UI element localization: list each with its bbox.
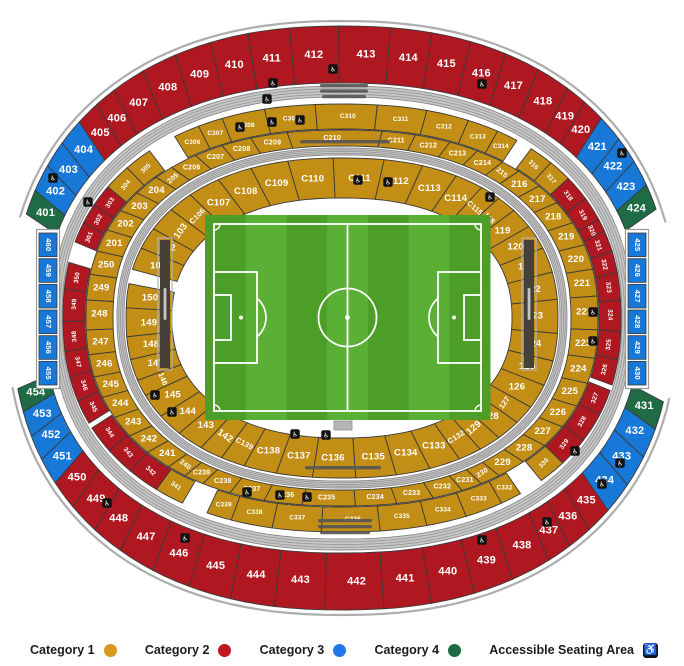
section-label-218: 218 — [545, 212, 561, 223]
section-label-216: 216 — [511, 179, 527, 190]
section-label-458: 458 — [44, 290, 53, 303]
svg-text:♿: ♿ — [244, 488, 250, 496]
svg-text:♿: ♿ — [304, 493, 310, 501]
section-label-228: 228 — [516, 443, 532, 454]
section-label-C311: C311 — [393, 116, 409, 123]
section-label-401: 401 — [36, 207, 55, 219]
legend-label: Category 2 — [145, 643, 210, 657]
section-label-406: 406 — [107, 113, 126, 125]
stadium-map: 4074084094104114124134144154164174184194… — [0, 0, 684, 634]
concourse-text-blob — [322, 95, 366, 98]
svg-text:♿: ♿ — [182, 534, 188, 542]
section-label-429: 429 — [633, 341, 642, 354]
section-label-204: 204 — [148, 185, 165, 196]
svg-text:♿: ♿ — [152, 391, 158, 399]
section-label-445: 445 — [206, 560, 225, 572]
wheelchair-icon: ♿ — [477, 535, 486, 544]
section-label-217: 217 — [529, 194, 545, 205]
section-label-428: 428 — [633, 315, 642, 328]
section-label-203: 203 — [131, 201, 147, 212]
wheelchair-icon: ♿ — [383, 177, 392, 186]
section-label-C332: C332 — [496, 485, 512, 492]
section-label-431: 431 — [635, 400, 654, 412]
section-label-249: 249 — [93, 283, 109, 294]
wheelchair-icon: ♿ — [267, 117, 276, 126]
wheelchair-icon: ♿ — [615, 458, 624, 467]
center-spot — [345, 315, 350, 320]
svg-text:♿: ♿ — [292, 430, 298, 438]
legend: Category 1 Category 2 Category 3 Categor… — [0, 637, 684, 663]
wheelchair-icon: ♿ — [262, 94, 271, 103]
section-label-424: 424 — [627, 203, 647, 215]
section-label-442: 442 — [347, 575, 366, 587]
soccer-field — [205, 215, 491, 420]
section-label-402: 402 — [46, 185, 65, 197]
field-stripe — [368, 215, 409, 420]
concourse-text-blob — [320, 84, 368, 87]
wheelchair-icon: ♿ — [477, 79, 486, 88]
section-label-432: 432 — [625, 425, 644, 437]
section-label-423: 423 — [617, 181, 636, 193]
wheelchair-icon: ♿ — [542, 517, 551, 526]
section-label-247: 247 — [92, 336, 108, 347]
legend-item-category-3: Category 3 — [260, 643, 347, 657]
section-label-145: 145 — [164, 390, 181, 401]
svg-text:♿: ♿ — [599, 480, 605, 488]
wheelchair-icon: ♿ — [180, 533, 189, 542]
section-label-246: 246 — [96, 359, 112, 370]
section-label-C334: C334 — [435, 506, 451, 513]
svg-text:♿: ♿ — [237, 123, 243, 131]
section-label-C137: C137 — [287, 450, 311, 461]
section-label-417: 417 — [504, 80, 523, 92]
svg-text:♿: ♿ — [479, 536, 485, 544]
concourse-text-blob — [318, 525, 372, 528]
section-label-420: 420 — [571, 124, 590, 136]
section-label-C310: C310 — [340, 113, 356, 120]
section-label-227: 227 — [534, 426, 550, 437]
section-label-435: 435 — [577, 495, 596, 507]
legend-item-category-2: Category 2 — [145, 643, 232, 657]
section-label-404: 404 — [74, 144, 94, 156]
wheelchair-icon: ♿ — [290, 429, 299, 438]
section-label-408: 408 — [158, 81, 177, 93]
section-label-126: 126 — [509, 381, 525, 392]
section-label-245: 245 — [103, 379, 120, 390]
section-label-201: 201 — [106, 238, 123, 249]
section-label-418: 418 — [533, 96, 552, 108]
section-label-453: 453 — [33, 408, 52, 420]
svg-text:♿: ♿ — [590, 308, 596, 316]
section-label-409: 409 — [190, 69, 209, 81]
section-label-C209: C209 — [264, 140, 282, 147]
section-label-C114: C114 — [444, 193, 468, 204]
section-label-444: 444 — [247, 569, 267, 581]
svg-text:♿: ♿ — [330, 65, 336, 73]
section-label-452: 452 — [42, 429, 61, 441]
wheelchair-icon: ♿ — [48, 173, 57, 182]
section-label-226: 226 — [550, 407, 566, 418]
penalty-spot — [452, 316, 456, 320]
section-label-C212: C212 — [420, 143, 438, 150]
svg-text:♿: ♿ — [264, 95, 270, 103]
section-label-C232: C232 — [434, 484, 452, 491]
section-label-241: 241 — [159, 448, 176, 459]
section-label-143: 143 — [198, 420, 214, 431]
section-label-460: 460 — [44, 238, 53, 251]
section-label-C307: C307 — [207, 130, 223, 137]
section-label-221: 221 — [574, 278, 591, 289]
penalty-spot — [239, 316, 243, 320]
section-label-C333: C333 — [471, 496, 487, 503]
section-label-242: 242 — [141, 433, 157, 444]
category-3-color-dot — [333, 644, 346, 657]
right-side-strip: 425426427428429430 — [626, 230, 649, 389]
section-label-325: 325 — [605, 338, 613, 350]
section-label-448: 448 — [109, 513, 128, 525]
concourse-text-blob — [305, 466, 381, 469]
wheelchair-icon: ♿ — [167, 407, 176, 416]
section-label-250: 250 — [98, 259, 114, 270]
category-4-color-dot — [448, 644, 461, 657]
section-label-C239: C239 — [193, 470, 211, 477]
section-label-244: 244 — [112, 398, 129, 409]
svg-text:♿: ♿ — [385, 178, 391, 186]
section-label-436: 436 — [559, 511, 578, 523]
section-label-407: 407 — [129, 97, 148, 109]
section-label-C134: C134 — [394, 447, 418, 458]
wheelchair-icon: ♿ — [83, 197, 92, 206]
field-suites-bar — [522, 238, 536, 370]
section-label-456: 456 — [44, 341, 53, 354]
category-1-color-dot — [104, 644, 117, 657]
section-label-C133: C133 — [422, 440, 446, 451]
section-label-441: 441 — [396, 572, 415, 584]
legend-label: Category 3 — [260, 643, 325, 657]
section-label-C108: C108 — [234, 186, 258, 197]
section-label-419: 419 — [555, 111, 574, 123]
section-label-411: 411 — [263, 52, 281, 64]
section-label-421: 421 — [588, 141, 607, 153]
section-label-248: 248 — [91, 309, 107, 320]
section-label-224: 224 — [570, 363, 587, 374]
svg-text:♿: ♿ — [270, 79, 276, 87]
section-label-450: 450 — [68, 472, 87, 484]
section-label-148: 148 — [143, 339, 159, 350]
svg-text:♿: ♿ — [590, 337, 596, 345]
section-label-412: 412 — [304, 49, 323, 61]
section-label-C231: C231 — [456, 477, 474, 484]
section-label-C214: C214 — [474, 160, 492, 167]
wheelchair-icon: ♿ — [588, 336, 597, 345]
section-label-416: 416 — [472, 68, 491, 80]
section-label-405: 405 — [91, 127, 110, 139]
section-label-C207: C207 — [207, 154, 225, 161]
wheelchair-icon: ♿ — [485, 192, 494, 201]
section-label-202: 202 — [117, 219, 133, 230]
section-label-C109: C109 — [265, 178, 289, 189]
concourse-text-blob — [300, 140, 390, 143]
field-suites-bar — [158, 238, 172, 370]
section-label-C337: C337 — [289, 515, 305, 522]
wheelchair-icon: ♿ — [242, 487, 251, 496]
svg-text:♿: ♿ — [544, 518, 550, 526]
section-label-457: 457 — [44, 315, 53, 328]
svg-text:♿: ♿ — [355, 176, 361, 184]
section-label-C238: C238 — [214, 478, 232, 485]
section-label-149: 149 — [141, 317, 157, 328]
legend-item-category-1: Category 1 — [30, 643, 117, 657]
wheelchair-icon: ♿ — [643, 643, 658, 658]
svg-text:♿: ♿ — [269, 118, 275, 126]
section-label-C138: C138 — [257, 445, 281, 456]
legend-label: Category 4 — [374, 643, 439, 657]
section-label-413: 413 — [357, 49, 376, 61]
section-label-C110: C110 — [301, 173, 324, 184]
wheelchair-icon: ♿ — [235, 122, 244, 131]
section-label-219: 219 — [558, 232, 574, 243]
section-label-349: 349 — [71, 298, 79, 310]
section-label-C107: C107 — [207, 198, 231, 209]
section-label-C233: C233 — [403, 490, 421, 497]
wheelchair-icon: ♿ — [321, 430, 330, 439]
section-label-451: 451 — [53, 450, 72, 462]
section-label-439: 439 — [477, 555, 496, 567]
svg-text:♿: ♿ — [572, 447, 578, 455]
section-label-C135: C135 — [361, 452, 385, 463]
section-label-C335: C335 — [394, 513, 410, 520]
section-label-C235: C235 — [318, 495, 336, 502]
legend-label: Accessible Seating Area — [489, 643, 634, 657]
section-label-150: 150 — [142, 293, 158, 304]
svg-text:♿: ♿ — [169, 408, 175, 416]
concourse-text-blob — [320, 90, 368, 93]
concourse-text-blob — [318, 519, 372, 522]
suite-bar-text-blob — [528, 288, 531, 320]
svg-text:♿: ♿ — [50, 174, 56, 182]
section-label-459: 459 — [44, 264, 53, 277]
wheelchair-icon: ♿ — [295, 115, 304, 124]
svg-text:♿: ♿ — [617, 459, 623, 467]
wheelchair-icon: ♿ — [102, 498, 111, 507]
wheelchair-icon: ♿ — [570, 446, 579, 455]
section-label-C234: C234 — [366, 494, 384, 501]
section-label-119: 119 — [495, 225, 511, 236]
section-label-446: 446 — [170, 547, 189, 559]
section-label-C213: C213 — [449, 150, 467, 157]
section-label-427: 427 — [633, 290, 642, 303]
section-label-C339: C339 — [216, 502, 232, 509]
left-side-strip: 460459458457456455 — [37, 230, 60, 389]
stadium-seating-chart: 4074084094104114124134144154164174184194… — [0, 0, 684, 666]
svg-text:♿: ♿ — [104, 499, 110, 507]
section-label-410: 410 — [225, 59, 244, 71]
wheelchair-icon: ♿ — [353, 175, 362, 184]
svg-text:♿: ♿ — [297, 116, 303, 124]
wheelchair-icon: ♿ — [328, 64, 337, 73]
legend-item-category-4: Category 4 — [374, 643, 461, 657]
section-label-438: 438 — [513, 540, 532, 552]
wheelchair-icon: ♿ — [275, 490, 284, 499]
section-label-430: 430 — [633, 367, 642, 380]
section-label-443: 443 — [291, 574, 310, 586]
suite-bar-text-blob — [164, 288, 167, 320]
svg-text:♿: ♿ — [323, 431, 329, 439]
svg-text:♿: ♿ — [487, 193, 493, 201]
section-label-455: 455 — [44, 367, 53, 380]
wheelchair-icon: ♿ — [617, 148, 626, 157]
wheelchair-icon: ♿ — [302, 492, 311, 501]
section-label-225: 225 — [562, 386, 579, 397]
concourse-text-blob — [320, 531, 370, 534]
section-label-324: 324 — [606, 309, 613, 321]
section-label-C113: C113 — [418, 183, 441, 194]
category-2-color-dot — [218, 644, 231, 657]
section-label-422: 422 — [604, 160, 623, 172]
section-label-323: 323 — [604, 281, 612, 293]
section-label-415: 415 — [437, 58, 456, 70]
section-label-403: 403 — [59, 164, 78, 176]
svg-text:♿: ♿ — [479, 80, 485, 88]
section-label-348: 348 — [71, 330, 79, 342]
wheelchair-icon: ♿ — [597, 479, 606, 488]
section-label-220: 220 — [568, 254, 584, 265]
section-label-C338: C338 — [247, 509, 263, 516]
wheelchair-icon: ♿ — [588, 307, 597, 316]
section-label-C313: C313 — [470, 133, 486, 140]
section-label-440: 440 — [438, 565, 457, 577]
section-label-C136: C136 — [321, 452, 345, 463]
wheelchair-icon: ♿ — [150, 390, 159, 399]
section-label-C312: C312 — [436, 123, 452, 130]
svg-text:♿: ♿ — [85, 198, 91, 206]
wheelchair-icon: ♿ — [268, 78, 277, 87]
svg-text:♿: ♿ — [277, 491, 283, 499]
camera-platform — [334, 421, 352, 430]
section-label-C306: C306 — [184, 139, 200, 146]
section-label-144: 144 — [180, 406, 197, 417]
section-label-C208: C208 — [233, 146, 251, 153]
section-label-C206: C206 — [183, 165, 201, 172]
svg-text:♿: ♿ — [619, 149, 625, 157]
section-label-414: 414 — [399, 52, 419, 64]
section-label-425: 425 — [633, 238, 642, 251]
legend-label: Category 1 — [30, 643, 95, 657]
field-stripe — [286, 215, 327, 420]
section-label-C314: C314 — [493, 143, 509, 150]
section-label-426: 426 — [633, 264, 642, 277]
section-label-C211: C211 — [388, 138, 405, 145]
section-label-229: 229 — [494, 457, 510, 468]
section-label-243: 243 — [125, 417, 141, 428]
section-label-447: 447 — [137, 531, 156, 543]
legend-item-accessible: Accessible Seating Area ♿ — [489, 643, 658, 658]
